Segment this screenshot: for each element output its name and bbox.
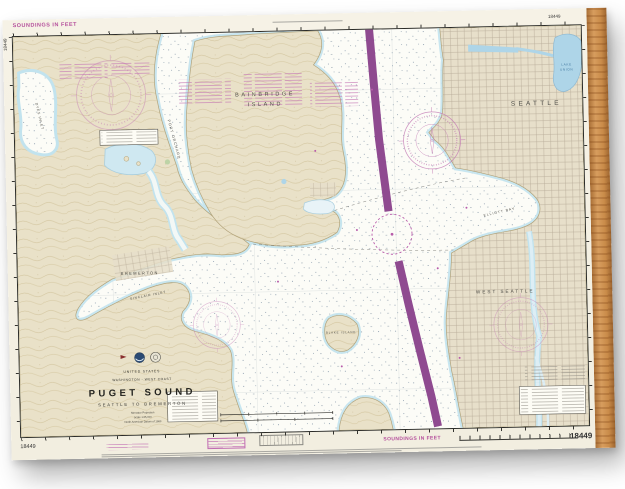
publisher-box bbox=[259, 434, 303, 446]
datum-note: North American Datum of 1983 bbox=[124, 419, 161, 424]
label-blake-island: BLAKE ISLAND bbox=[326, 330, 356, 335]
soundings-note-bottom: SOUNDINGS IN FEET bbox=[383, 435, 441, 442]
product-photo: SOUNDINGS IN FEET 18449 18449 18449 SOUN… bbox=[0, 0, 625, 489]
noaa-seal-icon bbox=[134, 352, 144, 362]
lake-labels: LAKE UNION bbox=[560, 62, 574, 71]
bottom-note-line-1 bbox=[102, 447, 482, 456]
label-bainbridge-1: BAINBRIDGE bbox=[235, 91, 295, 98]
scale-ruler bbox=[459, 433, 577, 440]
winslow-urban bbox=[310, 182, 336, 197]
chart-neatline: UNITED STATES WASHINGTON - WEST COAST PU… bbox=[12, 24, 590, 438]
label-lake-union-1: LAKE bbox=[561, 62, 572, 66]
commerce-seal-icon bbox=[150, 352, 160, 362]
chart-number-bottom-left: 18449 bbox=[20, 444, 35, 450]
label-lake-union-2: UNION bbox=[560, 67, 573, 71]
chart-number-top-left: 18449 bbox=[3, 39, 8, 52]
label-seattle: SEATTLE bbox=[511, 100, 562, 108]
country-label: UNITED STATES bbox=[123, 369, 160, 374]
soundings-note-top: SOUNDINGS IN FEET bbox=[13, 22, 78, 29]
label-bremerton: BREMERTON bbox=[121, 270, 159, 276]
scale-note: Scale 1:25,000 bbox=[134, 415, 153, 419]
label-bainbridge-2: ISLAND bbox=[247, 102, 283, 109]
chart-map: UNITED STATES WASHINGTON - WEST COAST PU… bbox=[13, 25, 589, 437]
eagle-harbor bbox=[303, 199, 334, 214]
chart-paper: SOUNDINGS IN FEET 18449 18449 18449 SOUN… bbox=[2, 8, 595, 460]
edition-stamp bbox=[207, 437, 245, 449]
chart-number-top-right: 18449 bbox=[548, 14, 561, 19]
top-margin-note-line bbox=[273, 20, 343, 22]
bottom-margin-magenta-note bbox=[106, 443, 148, 450]
wood-print: SOUNDINGS IN FEET 18449 18449 18449 SOUN… bbox=[2, 8, 615, 461]
chart-title: PUGET SOUND bbox=[89, 386, 196, 399]
projection-note: Mercator Projection bbox=[131, 410, 155, 414]
chart-number-bottom-right: 18449 bbox=[570, 431, 592, 440]
